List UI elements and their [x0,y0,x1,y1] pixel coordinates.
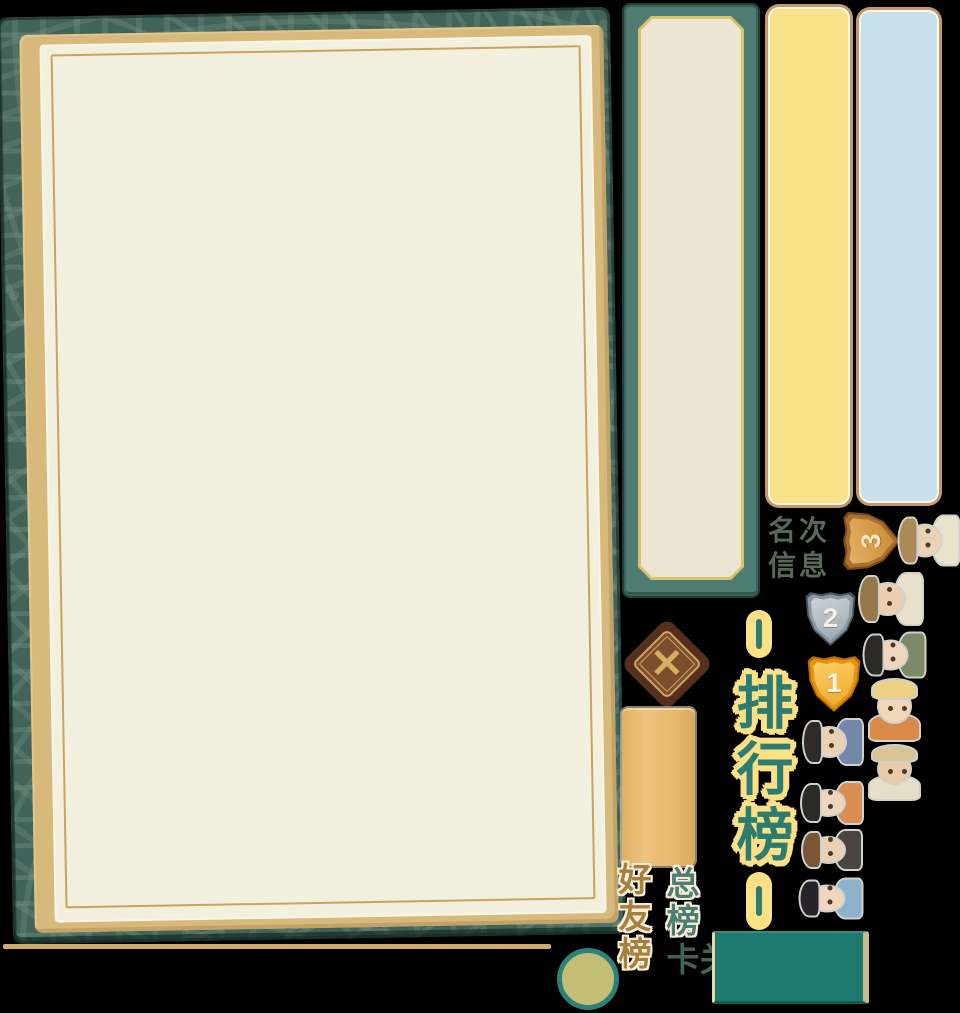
title-dash-bottom [746,872,772,930]
paper-inner-border [51,45,596,908]
page-edge-line [3,944,551,949]
row-strip-yellow [765,4,853,508]
tab-overall-ranking[interactable]: 总榜 [664,866,697,940]
medal-bronze: 3 [842,510,900,572]
medal-gold: 1 [806,655,862,712]
rank-info-line1: 名次 [760,513,838,548]
tan-button[interactable] [622,708,695,866]
side-panel-inner [641,19,741,577]
sprite-sheet-stage: 名次 信息 ✕ 排行榜 总榜 好友榜 关卡 321 [0,0,960,1013]
side-panel-gold-border [638,16,744,580]
medal-rank-label: 2 [804,591,857,646]
avatar-green-ribbon-woman[interactable] [862,629,926,680]
close-icon: ✕ [650,644,684,684]
avatar-official-black-hat[interactable] [802,716,864,768]
rank-info-line2: 信息 [760,548,838,583]
close-button-inner: ✕ [632,629,703,700]
row-strip-blue [856,7,942,506]
tab-friends-ranking[interactable]: 好友榜 [616,862,649,973]
title-dash-top [746,610,772,658]
avatar-curly-man[interactable] [801,827,863,873]
avatar-elder-straw-hat[interactable] [897,512,960,568]
teal-button-base[interactable] [712,931,869,1004]
side-panel-strip [622,3,760,598]
medal-rank-label: 1 [806,655,862,712]
avatar-round-hat-man[interactable] [858,570,924,628]
olive-circle-button[interactable] [557,948,619,1010]
board-cover [0,7,626,945]
medal-rank-label: 3 [842,510,900,572]
avatar-bandana-man[interactable] [866,744,923,801]
medal-silver: 2 [804,591,857,646]
avatar-yellow-cap-man[interactable] [866,678,923,742]
avatar-blue-stripe-youth[interactable] [798,875,863,921]
avatar-bun-woman[interactable] [800,779,864,827]
paper-panel [39,35,606,923]
rank-info-label: 名次 信息 [760,513,838,583]
board-page-stack [19,25,619,933]
